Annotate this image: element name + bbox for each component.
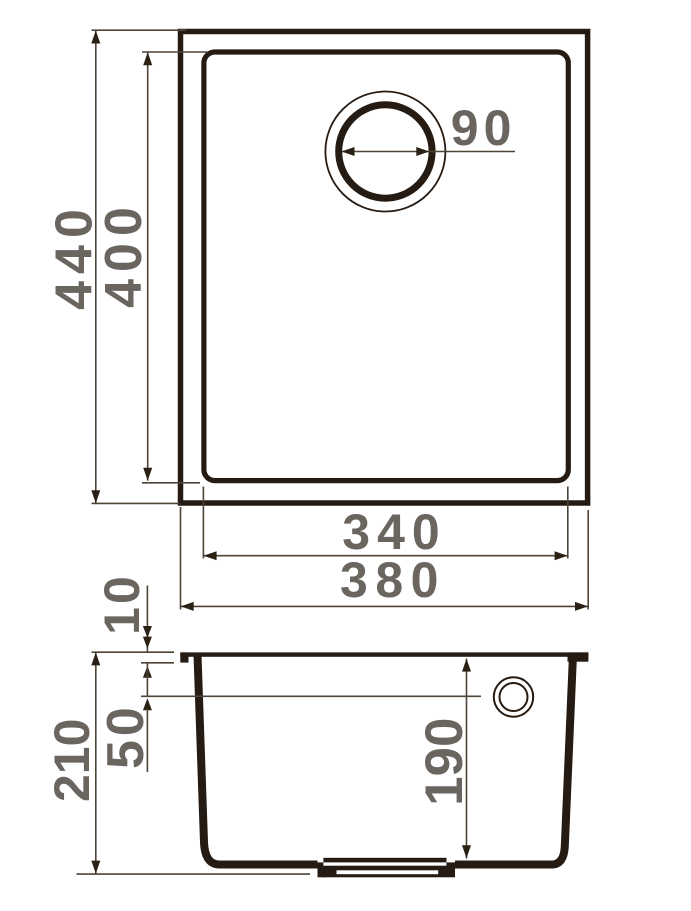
svg-text:190: 190 xyxy=(415,717,474,805)
svg-text:90: 90 xyxy=(451,100,517,156)
svg-text:400: 400 xyxy=(95,200,153,308)
svg-text:210: 210 xyxy=(44,719,100,802)
svg-text:10: 10 xyxy=(94,573,150,635)
svg-text:380: 380 xyxy=(340,552,446,608)
svg-text:50: 50 xyxy=(97,703,155,769)
